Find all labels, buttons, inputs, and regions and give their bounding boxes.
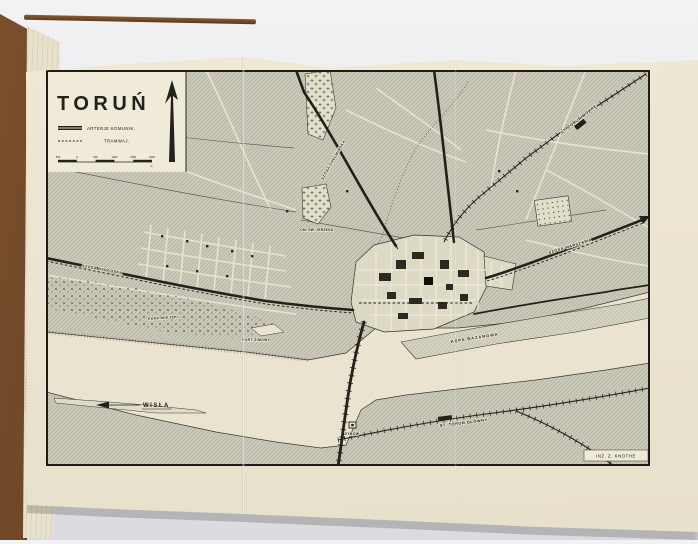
legend-tram-label: TRAMWAJ.: [104, 139, 129, 144]
scale-unit-label: m.: [150, 164, 153, 168]
credit-box: INŻ. Z. KNOTHE: [584, 450, 648, 461]
legend-artery-label: ARTERJE KOMUNIK.: [87, 126, 135, 131]
cemetery-label: CM. ŚW. JERZEGO: [300, 227, 333, 232]
dybow-label: DYBÓW: [345, 431, 360, 436]
scale-tick-4: 1500: [130, 155, 136, 159]
winter-port-label: PORT ZIMOWY: [242, 338, 271, 342]
torun-city-map: WISŁA PARK MIEJSKI PORT ZIMOWY KĘPA BAZA…: [46, 70, 650, 466]
map-title: TORUŃ: [57, 92, 150, 115]
scale-tick-2: 500: [93, 155, 98, 159]
credit-label: INŻ. Z. KNOTHE: [596, 454, 636, 459]
scale-tick-0: 500: [56, 155, 61, 159]
plot-dotted: [534, 196, 571, 226]
scale-tick-5: 2000: [149, 155, 155, 159]
book-board-edge: [24, 15, 256, 24]
river-label: WISŁA: [143, 403, 170, 409]
map-sheet: WISŁA PARK MIEJSKI PORT ZIMOWY KĘPA BAZA…: [0, 0, 698, 540]
title-panel: TORUŃ ARTERJE KOMUNIK. TRAMWAJ. 500 0 50…: [48, 72, 186, 172]
scale-tick-3: 1000: [112, 155, 118, 159]
dybow-ruin: [349, 422, 356, 428]
